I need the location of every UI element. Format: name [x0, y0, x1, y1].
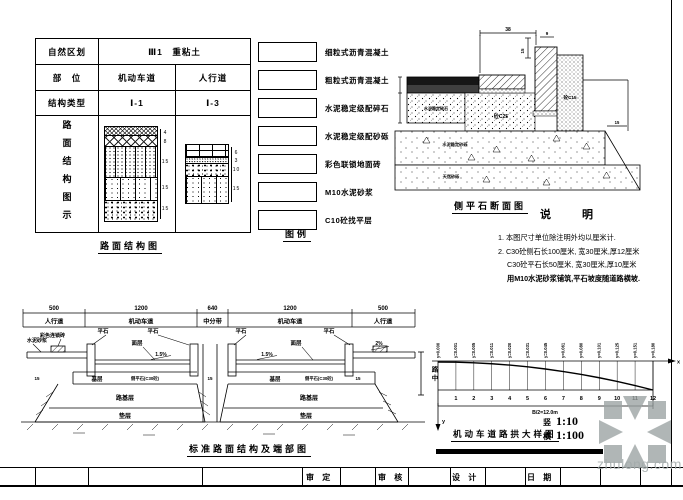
- station-number: 8: [580, 396, 583, 402]
- section-caption: 标准路面结构及端部图: [187, 442, 311, 457]
- label-base-course: 水泥稳定碎石: [423, 105, 448, 111]
- svg-text:1.5%: 1.5%: [261, 352, 273, 358]
- section-dim-labels: 500 1200 640 1200 500: [49, 306, 389, 312]
- dim-15: 15: [520, 48, 525, 54]
- svg-text:路基层: 路基层: [116, 394, 134, 402]
- table-value: Ⅲ1 重粘土: [99, 39, 251, 65]
- svg-text:侧平石(C30砼): 侧平石(C30砼): [131, 375, 160, 382]
- title-strip: 审 定 审 核 设 计 日 期: [0, 467, 683, 487]
- note-line: 1. 本图尺寸单位除注明外均以厘米计.: [498, 231, 680, 245]
- strip-divider: [202, 468, 203, 485]
- table-header-vertical: 路面结构图示: [61, 120, 74, 228]
- drawing-sheet: 自然区划 Ⅲ1 重粘土 部 位 机动车道 人行道 结构类型 Ⅰ-1 Ⅰ-3 路面…: [0, 0, 683, 500]
- curb-section-drawing: 38 15 9 15 水泥稳定碎石 砼C25 砼C15: [393, 25, 643, 197]
- layer-fine-asphalt: [105, 127, 157, 136]
- svg-text:500: 500: [49, 306, 60, 312]
- strip-divider: [340, 468, 341, 485]
- section-text-labels: 水泥砂浆 彩色连锁砖 平石 平石 平石 平石 面层 面层 1.5% 1.5% 2…: [26, 328, 383, 420]
- note-line: 2. C30砼侧石长100厘米, 宽30厘米,厚12厘米: [498, 245, 680, 259]
- svg-text:1.5%: 1.5%: [155, 352, 167, 358]
- vertical-scale-name: 竖: [543, 417, 551, 428]
- crown-scales: 竖1:10 横1:100: [543, 414, 584, 442]
- swatch-brick: [258, 154, 317, 174]
- svg-text:垫层: 垫层: [300, 412, 312, 420]
- strip-divider: [485, 468, 486, 485]
- station-number: 7: [562, 396, 565, 402]
- x-axis-label: x: [677, 360, 681, 366]
- dim-38: 38: [505, 27, 511, 33]
- swatch-cement-sand: [258, 126, 317, 146]
- notes-title: 说 明: [498, 206, 680, 222]
- section-structure: [21, 344, 425, 422]
- crown-ordinate-label: y=0.061: [561, 342, 566, 358]
- strip-divider: [450, 468, 451, 485]
- legend-caption: 图例: [283, 227, 311, 242]
- crown-ordinate-label: y=0.045: [543, 342, 548, 358]
- crown-ordinate-label: y=0.101: [597, 342, 602, 358]
- crown-ordinate-label: y=0.080: [579, 342, 584, 358]
- layer-sand-gravel: [186, 177, 228, 203]
- strip-divider: [88, 468, 89, 485]
- note-line: 用M10水泥砂浆铺筑,平石坡度随道路横坡.: [507, 272, 680, 286]
- svg-text:平石: 平石: [147, 328, 159, 335]
- svg-text:640: 640: [207, 306, 218, 312]
- svg-text:平石: 平石: [235, 328, 247, 335]
- pavement-stack-sidewalk: 6 3 10 15: [176, 144, 250, 204]
- label-c25: 砼C25: [494, 113, 508, 120]
- svg-text:平石: 平石: [97, 328, 109, 335]
- strip-divider: [525, 468, 526, 485]
- legend-item: 粗粒式沥青混凝土: [258, 66, 389, 94]
- label-band2: 天然砂砾: [443, 173, 461, 180]
- svg-text:人行道: 人行道: [45, 318, 64, 326]
- crown-ordinate-label: y=0.031: [525, 342, 530, 358]
- svg-text:面层: 面层: [131, 339, 143, 347]
- station-number: 1: [454, 396, 457, 402]
- layer-cement-gravel: [105, 147, 157, 178]
- table-header: 结构类型: [36, 91, 99, 116]
- note-line: C30砼平石长50厘米, 宽30厘米,厚10厘米: [507, 258, 680, 272]
- slope-hatches: [27, 392, 408, 435]
- svg-text:垫层: 垫层: [119, 412, 131, 420]
- x-axis-arrow: [668, 359, 676, 364]
- strip-divider: [560, 468, 561, 485]
- swatch-fine-asphalt: [258, 42, 317, 62]
- layer-concrete: [186, 164, 228, 177]
- svg-text:15: 15: [355, 376, 361, 381]
- strip-divider: [302, 468, 303, 485]
- svg-text:2%: 2%: [375, 341, 383, 347]
- dim-15-right: 15: [615, 120, 620, 125]
- svg-text:基层: 基层: [268, 375, 281, 383]
- titleblock-date-label: 日 期: [527, 472, 554, 483]
- table-header: 部 位: [36, 65, 99, 91]
- watermark-text: zhulong.com: [597, 456, 682, 472]
- svg-text:15: 15: [34, 376, 40, 381]
- legend-item: 彩色联锁地面砖: [258, 150, 389, 178]
- crown-ordinate-label: y=0.011: [489, 342, 494, 358]
- station-number: 2: [472, 396, 475, 402]
- legend-item: 水泥稳定级配碎石: [258, 94, 389, 122]
- station-number: 3: [490, 396, 493, 402]
- standard-section-drawing: 500 1200 640 1200 500 人行道 机动车道 中分带 机动车道 …: [13, 300, 433, 438]
- table-header: 自然区划: [36, 39, 99, 65]
- station-number: 6: [544, 396, 547, 402]
- svg-text:1200: 1200: [283, 306, 297, 312]
- crown-ordinate-label: y=0.020: [507, 342, 512, 358]
- svg-text:500: 500: [378, 306, 389, 312]
- table-caption: 路面结构图: [98, 239, 162, 254]
- curb-foundation-bands: [395, 131, 640, 190]
- caption-underline-bar: [436, 449, 603, 454]
- svg-text:平石: 平石: [323, 328, 335, 335]
- road-center-label: 路中: [428, 366, 438, 383]
- svg-text:基层: 基层: [90, 375, 103, 383]
- layer-natural-sand: [105, 201, 157, 221]
- section-leaders: [33, 335, 389, 360]
- svg-text:面层: 面层: [290, 339, 302, 347]
- titleblock-designed-label: 设 计: [452, 472, 479, 483]
- swatch-cement-gravel: [258, 98, 317, 118]
- legend-item: C10砼找平层: [258, 206, 389, 234]
- crown-ordinate-label: y=0.000: [435, 342, 440, 358]
- vertical-scale-value: 1:10: [556, 414, 578, 429]
- crown-ordinate-label: y=0.125: [614, 342, 619, 358]
- horizontal-scale-name: 横: [543, 431, 551, 442]
- table-value: Ⅰ-1: [99, 91, 176, 116]
- titleblock-approved-label: 审 定: [306, 472, 333, 483]
- strip-divider: [375, 468, 376, 485]
- layer-cement-sand: [105, 178, 157, 201]
- dim-9: 9: [546, 31, 549, 36]
- svg-text:中分带: 中分带: [203, 318, 222, 326]
- pavement-stack-roadway: 4 8 15 15 15: [99, 126, 175, 222]
- crown-ordinate-label: y=0.151: [632, 342, 637, 358]
- svg-text:15: 15: [207, 376, 213, 381]
- legend-item: 细粒式沥青混凝土: [258, 38, 389, 66]
- stack-dims: 6 3 10 15: [231, 147, 241, 202]
- crown-ordinate-label: y=0.180: [650, 342, 655, 358]
- label-c15: 砼C15: [563, 94, 576, 101]
- legend-item: 水泥稳定级配砂砾: [258, 122, 389, 150]
- stack-dims: 4 8 15 15 15: [160, 129, 170, 219]
- svg-text:机动车道: 机动车道: [278, 318, 304, 326]
- swatch-coarse-asphalt: [258, 70, 317, 90]
- strip-divider: [408, 468, 409, 485]
- svg-text:彩色连锁砖: 彩色连锁砖: [39, 332, 65, 339]
- road-structure-table: 自然区划 Ⅲ1 重粘土 部 位 机动车道 人行道 结构类型 Ⅰ-1 Ⅰ-3 路面…: [35, 38, 251, 233]
- station-number: 5: [526, 396, 529, 402]
- svg-text:机动车道: 机动车道: [129, 318, 155, 326]
- table-value: 机动车道: [99, 65, 176, 91]
- horizontal-scale-value: 1:100: [556, 428, 584, 443]
- legend: 细粒式沥青混凝土 粗粒式沥青混凝土 水泥稳定级配碎石 水泥稳定级配砂砾 彩色联锁…: [258, 38, 389, 234]
- y-axis-label: y: [442, 419, 446, 425]
- station-number: 4: [508, 396, 512, 402]
- table-value: 人行道: [176, 65, 251, 91]
- layer-brick: [186, 145, 228, 158]
- layer-coarse-asphalt: [105, 136, 157, 147]
- label-band1: 水泥稳定砂砾: [442, 141, 468, 148]
- strip-divider: [35, 468, 36, 485]
- notes: 说 明 1. 本图尺寸单位除注明外均以厘米计. 2. C30砼侧石长100厘米,…: [498, 206, 680, 285]
- crown-ordinate-label: y=0.005: [471, 342, 476, 358]
- swatch-mortar: [258, 182, 317, 202]
- svg-text:1200: 1200: [134, 306, 148, 312]
- section-zone-labels: 人行道 机动车道 中分带 机动车道 人行道: [45, 318, 393, 326]
- svg-text:侧平石(C30砼): 侧平石(C30砼): [305, 375, 334, 382]
- svg-text:路基层: 路基层: [300, 394, 318, 402]
- svg-text:人行道: 人行道: [374, 318, 393, 326]
- legend-item: M10水泥砂浆: [258, 178, 389, 206]
- y-axis-arrow: [436, 424, 441, 431]
- table-value: Ⅰ-3: [176, 91, 251, 116]
- crown-ordinate-label: y=0.001: [453, 342, 458, 358]
- titleblock-checked-label: 审 核: [378, 472, 405, 483]
- curb-structure: [407, 47, 628, 131]
